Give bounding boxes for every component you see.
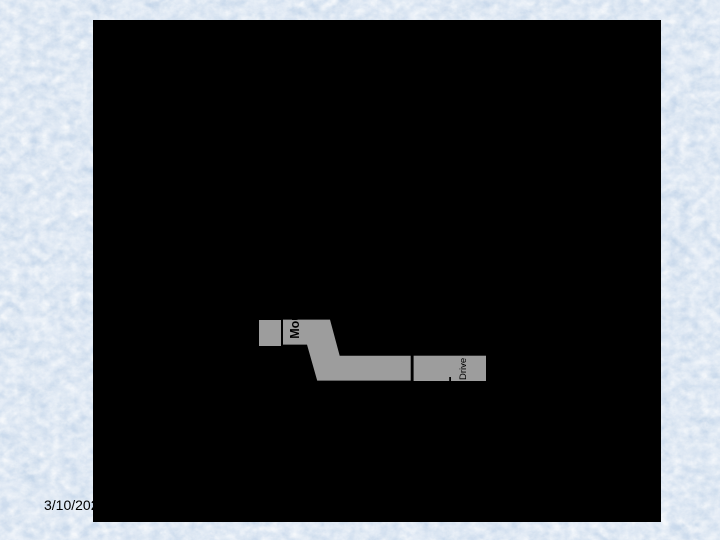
svg-text:Drive: Drive <box>458 358 469 380</box>
svg-text:Mountain: Mountain <box>288 283 302 339</box>
